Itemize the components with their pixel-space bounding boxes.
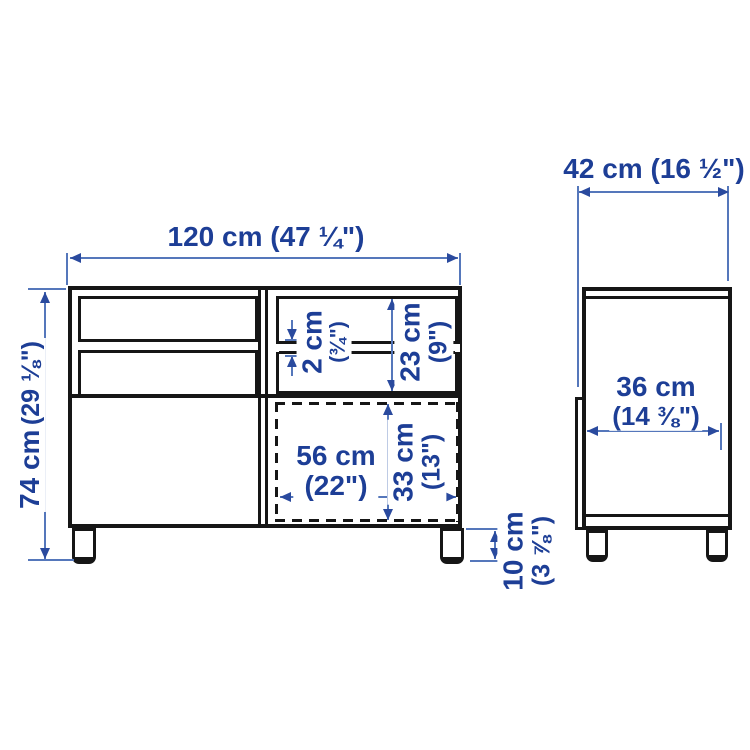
shelf-thickness-arrow-lower [291,356,293,376]
front-leg-right [440,528,464,564]
opening-width-label: 56 cm (22") [293,440,378,502]
height-extension-line-bottom [28,559,74,561]
depth-extension-line-left [577,186,579,387]
width-dimension-arrow [70,257,458,259]
depth-dimension-arrow [579,191,729,193]
opening-dashed-left [275,402,278,522]
side-top-panel-line [584,296,730,299]
compartment-height-metric: 23 cm [395,302,425,381]
side-bottom-band-line [584,514,730,517]
shelf-thickness-imperial: (¾") [328,310,351,374]
height-imperial: (29 ⅛") [17,341,45,425]
opening-height-label: 33 cm (13") [387,419,446,504]
interior-depth-label: 36 cm (14 ⅜") [609,371,702,431]
depth-extension-line-right [727,186,729,281]
width-imperial: (47 ¼") [270,221,364,252]
shelf-thickness-label: 2 cm (¾") [297,307,352,377]
shelf-thickness-arrow-upper [291,320,293,340]
height-metric: 74 cm [14,430,45,509]
interior-depth-metric: 36 cm [612,372,699,402]
opening-dashed-top [275,402,459,405]
front-leg-left [72,528,96,564]
width-metric: 120 cm [168,221,263,252]
front-center-divider-line-left [258,286,261,528]
shelf-thickness-metric: 2 cm [298,310,328,374]
height-extension-line-top [28,288,66,290]
height-dimension-label: 74 cm (29 ⅛") [14,338,46,512]
width-extension-line-left [66,253,68,285]
side-leg-front [586,530,608,562]
opening-dashed-right [456,402,459,522]
side-door-front-edge [575,397,585,530]
drawer-front-top [78,296,258,342]
leg-height-imperial: (3 ⅞") [529,511,556,590]
opening-height-metric: 33 cm [388,422,418,501]
compartment-height-imperial: (9") [426,302,453,381]
compartment-height-label: 23 cm (9") [394,299,453,384]
depth-metric: 42 cm [563,153,642,184]
interior-depth-imperial: (14 ⅜") [612,402,699,430]
opening-width-metric: 56 cm [296,441,375,471]
depth-imperial: (16 ½") [650,153,744,184]
opening-width-imperial: (22") [296,471,375,501]
side-leg-back [706,530,728,562]
width-dimension-label: 120 cm (47 ¼") [165,221,368,253]
leg-height-metric: 10 cm [498,511,528,590]
compartment-height-arrow [391,299,393,391]
depth-dimension-label: 42 cm (16 ½") [560,153,747,185]
leg-height-arrow [494,531,496,559]
opening-height-imperial: (13") [419,422,446,501]
width-extension-line-right [459,253,461,285]
front-center-divider-line-right [265,286,268,528]
drawer-front-bottom [78,350,258,397]
interior-depth-tick [720,423,722,450]
opening-dashed-bottom [275,519,459,522]
dimension-diagram: 120 cm (47 ¼") 74 cm (29 ⅛") 2 cm (¾") 2… [0,0,750,750]
leg-height-label: 10 cm (3 ⅞") [497,508,556,593]
